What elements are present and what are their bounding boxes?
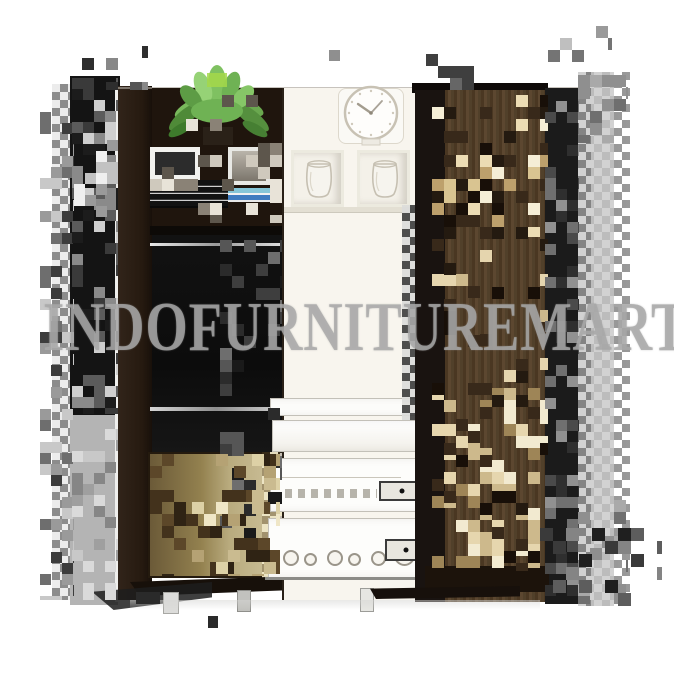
mosaic-block [438, 66, 450, 78]
mosaic-block [40, 442, 51, 453]
mosaic-block [40, 420, 51, 431]
mosaic-block [40, 211, 51, 222]
chrome-shelf-line [150, 243, 282, 246]
mosaic-block [631, 554, 644, 567]
media-unit [272, 420, 434, 452]
mosaic-block [657, 567, 662, 580]
mosaic-block [40, 178, 51, 189]
mosaic-block [329, 50, 340, 61]
stack-base-line [265, 577, 435, 580]
watermark-text: INDOFURNITUREMART [43, 291, 631, 365]
mosaic-block [426, 54, 438, 66]
mosaic-block [40, 409, 51, 420]
book-stack [150, 180, 228, 208]
mosaic-block [462, 66, 474, 78]
media-drawer [268, 518, 434, 578]
picture-frame [150, 147, 200, 180]
glass-cup [368, 158, 402, 202]
media-drawer [270, 458, 434, 512]
pixelation-region [318, 50, 378, 82]
mosaic-block [596, 26, 608, 38]
picture-frame [228, 147, 270, 185]
wall-clock [341, 84, 401, 146]
mosaic-block [142, 46, 148, 58]
mosaic-block [40, 123, 51, 134]
mosaic-block [572, 50, 584, 62]
mosaic-block [560, 38, 572, 50]
product-photo-canvas: INDOFURNITUREMART [0, 0, 674, 674]
mosaic-block [106, 58, 118, 70]
floor-shadow [130, 600, 540, 610]
mosaic-block [82, 58, 94, 70]
potted-plant [155, 55, 280, 155]
mosaic-block [208, 616, 218, 628]
mosaic-block [40, 574, 51, 585]
magazine-spines [228, 188, 284, 202]
panel-line [281, 477, 401, 478]
mosaic-block [40, 112, 51, 123]
drawer-chest [148, 452, 280, 578]
mosaic-block [40, 266, 51, 277]
mosaic-block [548, 50, 560, 62]
left-cabinet-lower-panel [70, 415, 118, 605]
mosaic-block [631, 528, 644, 541]
left-cabinet [70, 76, 120, 418]
chrome-shelf-line [150, 407, 282, 411]
shelf-divider [150, 226, 282, 235]
mosaic-block [450, 66, 462, 78]
mosaic-block [40, 277, 51, 288]
mosaic-block [40, 453, 51, 464]
mosaic-block [40, 596, 51, 600]
mosaic-block [40, 519, 51, 530]
mosaic-block [608, 38, 612, 50]
shelf-under-boxes [284, 207, 417, 213]
mosaic-block [657, 541, 662, 554]
mosaic-block [40, 464, 51, 475]
glass-cup [302, 158, 336, 202]
button-row [285, 489, 377, 498]
